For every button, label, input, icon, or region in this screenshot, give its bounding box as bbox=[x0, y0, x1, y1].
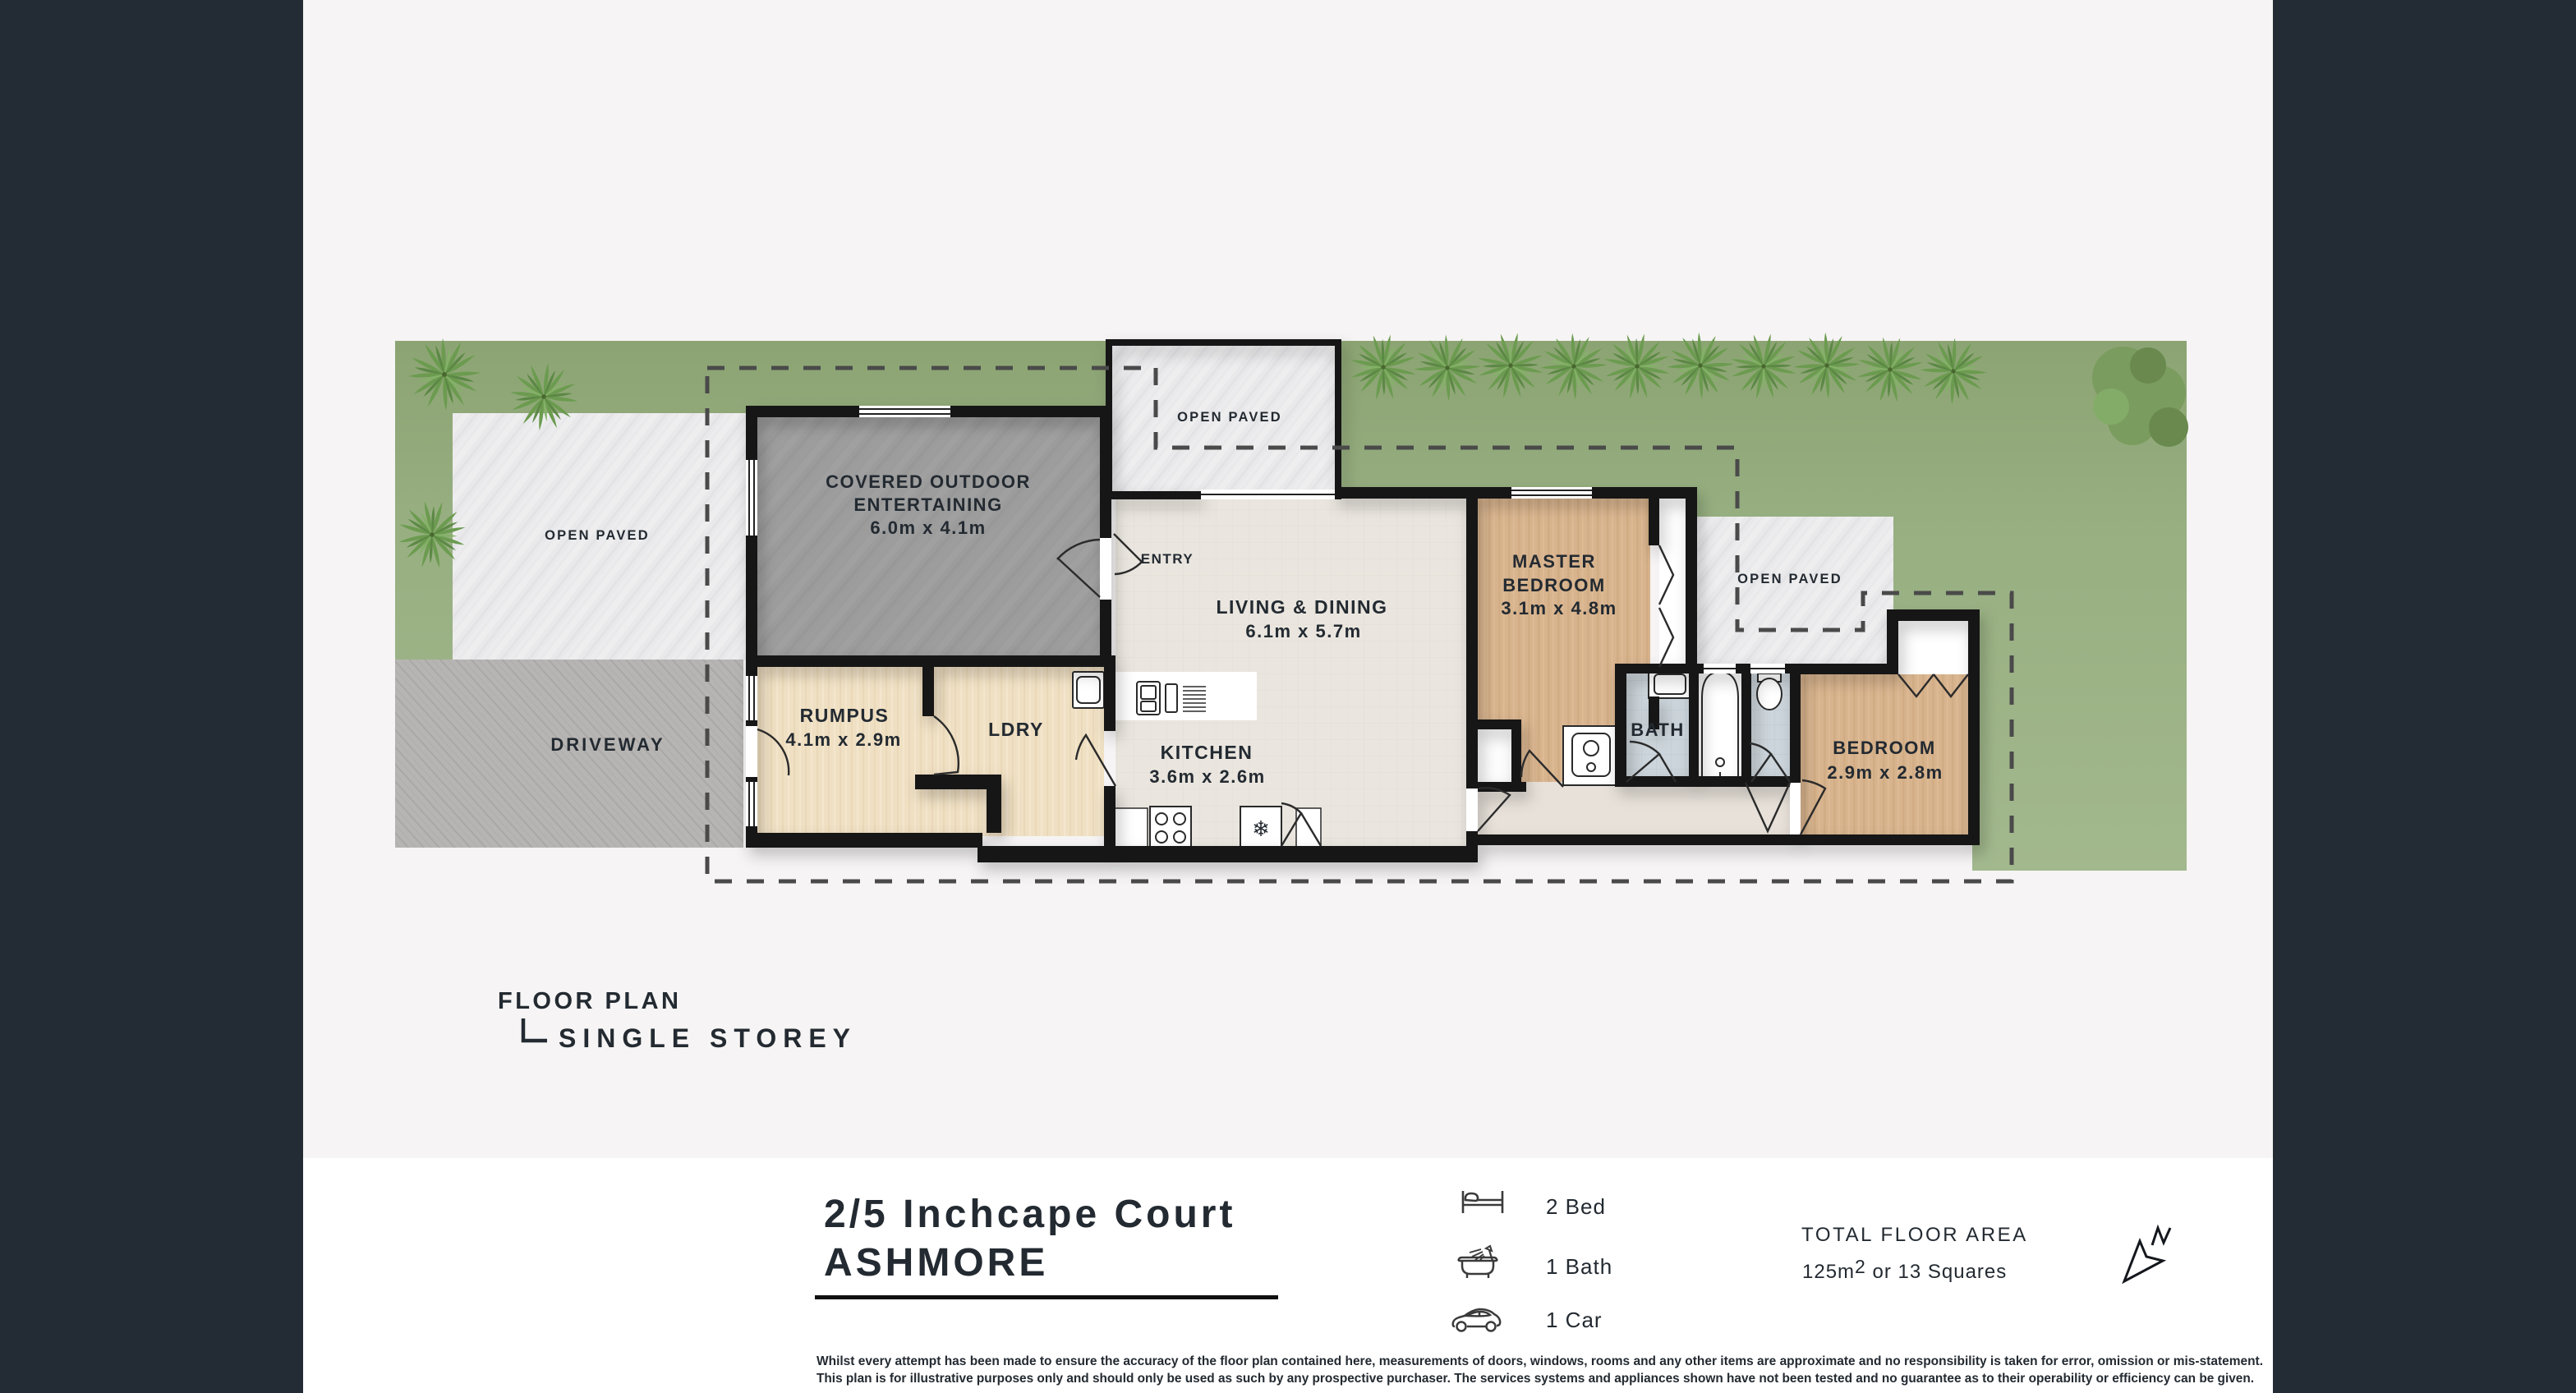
svg-text:BEDROOM: BEDROOM bbox=[1502, 575, 1605, 595]
svg-text:2.9m x 2.8m: 2.9m x 2.8m bbox=[1827, 762, 1943, 783]
svg-text:1 Bath: 1 Bath bbox=[1546, 1254, 1612, 1279]
svg-text:BATH: BATH bbox=[1631, 719, 1684, 740]
svg-text:OPEN PAVED: OPEN PAVED bbox=[1737, 572, 1842, 586]
svg-text:LIVING & DINING: LIVING & DINING bbox=[1216, 596, 1387, 618]
svg-text:KITCHEN: KITCHEN bbox=[1161, 742, 1253, 763]
svg-text:1 Car: 1 Car bbox=[1546, 1308, 1603, 1332]
svg-text:This plan is for illustrative: This plan is for illustrative purposes o… bbox=[816, 1372, 2254, 1386]
svg-text:2 Bed: 2 Bed bbox=[1546, 1194, 1606, 1219]
svg-text:OPEN PAVED: OPEN PAVED bbox=[545, 528, 650, 543]
svg-text:4.1m x 2.9m: 4.1m x 2.9m bbox=[785, 729, 901, 750]
svg-text:RUMPUS: RUMPUS bbox=[800, 705, 890, 726]
svg-text:❄: ❄ bbox=[1252, 816, 1270, 841]
svg-text:LDRY: LDRY bbox=[988, 719, 1044, 740]
svg-text:FLOOR PLAN: FLOOR PLAN bbox=[498, 988, 682, 1014]
svg-text:Whilst every attempt has been: Whilst every attempt has been made to en… bbox=[816, 1354, 2263, 1368]
svg-text:MASTER: MASTER bbox=[1512, 551, 1596, 572]
svg-text:6.0m x 4.1m: 6.0m x 4.1m bbox=[870, 517, 986, 538]
svg-text:2/5 Inchcape Court: 2/5 Inchcape Court bbox=[824, 1193, 1235, 1236]
svg-text:DRIVEWAY: DRIVEWAY bbox=[550, 734, 665, 755]
svg-text:TOTAL FLOOR AREA: TOTAL FLOOR AREA bbox=[1801, 1224, 2028, 1246]
svg-text:BEDROOM: BEDROOM bbox=[1833, 738, 1935, 758]
svg-text:ENTRY: ENTRY bbox=[1141, 551, 1194, 567]
svg-text:COVERED OUTDOOR: COVERED OUTDOOR bbox=[826, 471, 1031, 492]
svg-text:3.6m x 2.6m: 3.6m x 2.6m bbox=[1149, 766, 1265, 787]
svg-text:ASHMORE: ASHMORE bbox=[824, 1241, 1048, 1285]
svg-text:OPEN PAVED: OPEN PAVED bbox=[1177, 410, 1282, 425]
svg-text:SINGLE STOREY: SINGLE STOREY bbox=[559, 1023, 857, 1053]
svg-text:6.1m x 5.7m: 6.1m x 5.7m bbox=[1245, 621, 1361, 641]
svg-text:ENTERTAINING: ENTERTAINING bbox=[853, 494, 1002, 515]
svg-text:3.1m x 4.8m: 3.1m x 4.8m bbox=[1501, 598, 1617, 618]
